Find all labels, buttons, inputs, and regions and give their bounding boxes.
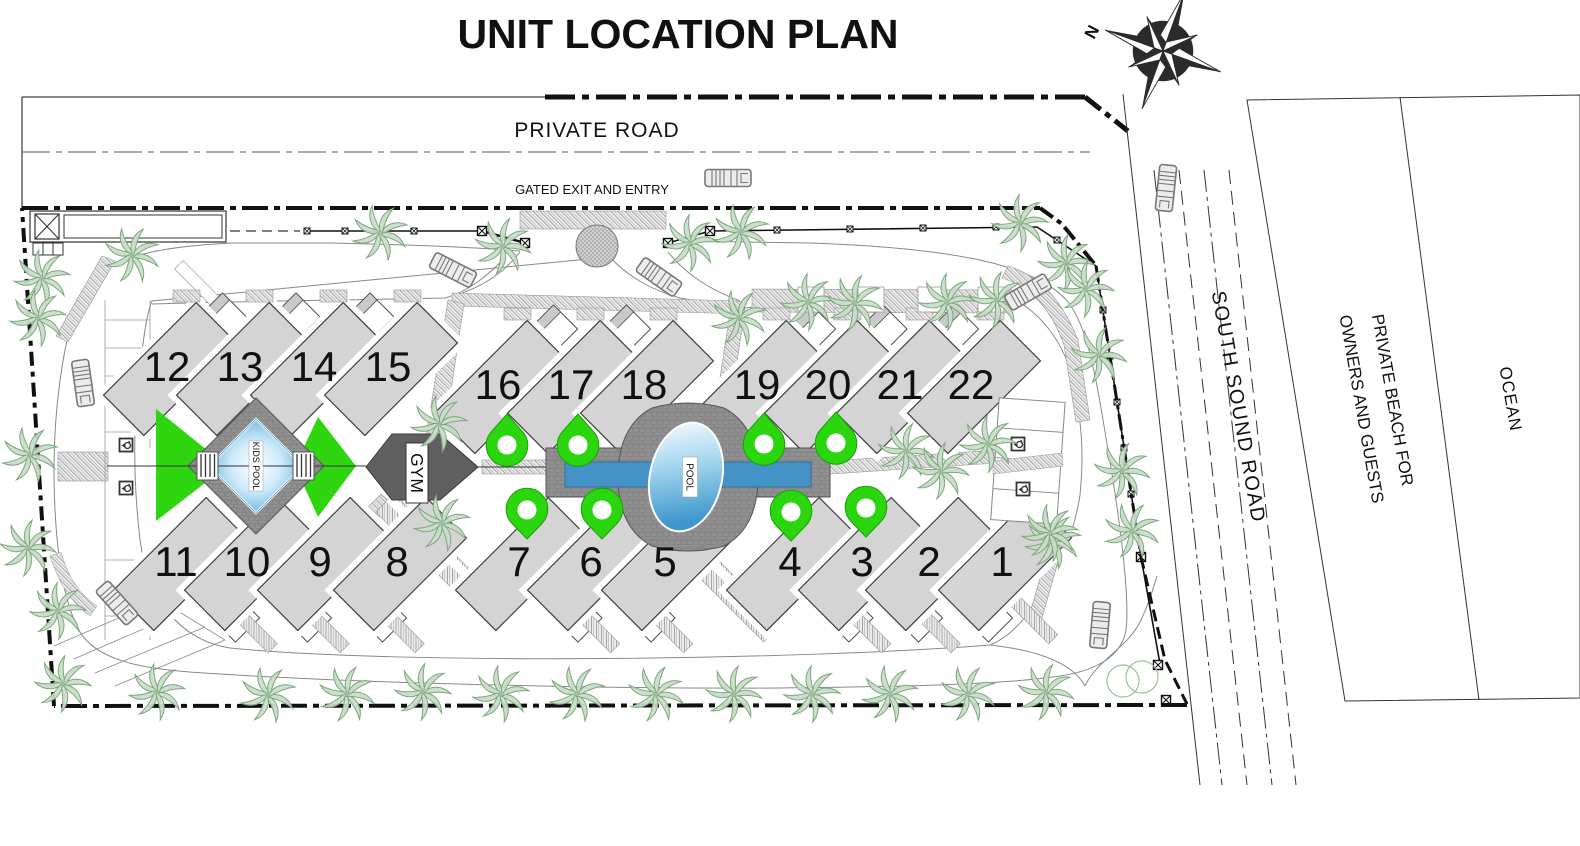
svg-text:21: 21 — [877, 361, 924, 408]
svg-text:17: 17 — [548, 361, 595, 408]
svg-text:15: 15 — [365, 343, 412, 390]
svg-text:8: 8 — [385, 538, 408, 585]
svg-text:11: 11 — [154, 538, 198, 585]
svg-text:KIDS POOL: KIDS POOL — [251, 442, 261, 491]
svg-text:6: 6 — [579, 538, 602, 585]
svg-text:7: 7 — [507, 538, 530, 585]
svg-text:19: 19 — [734, 361, 781, 408]
svg-text:1: 1 — [990, 538, 1013, 585]
svg-text:10: 10 — [224, 538, 271, 585]
svg-text:3: 3 — [850, 538, 873, 585]
svg-text:POOL: POOL — [684, 463, 695, 491]
svg-text:PRIVATE ROAD: PRIVATE ROAD — [514, 119, 679, 142]
svg-text:GYM: GYM — [407, 453, 427, 493]
svg-text:20: 20 — [805, 361, 852, 408]
svg-text:2: 2 — [917, 538, 940, 585]
svg-text:UNIT LOCATION PLAN: UNIT LOCATION PLAN — [457, 11, 898, 57]
svg-text:14: 14 — [291, 343, 338, 390]
svg-text:9: 9 — [308, 538, 331, 585]
svg-text:22: 22 — [948, 361, 995, 408]
svg-text:4: 4 — [778, 538, 801, 585]
svg-text:GATED EXIT AND ENTRY: GATED EXIT AND ENTRY — [515, 182, 669, 197]
svg-text:12: 12 — [144, 343, 191, 390]
svg-text:13: 13 — [217, 343, 264, 390]
svg-text:18: 18 — [621, 361, 668, 408]
svg-text:16: 16 — [475, 361, 522, 408]
svg-text:5: 5 — [653, 538, 676, 585]
